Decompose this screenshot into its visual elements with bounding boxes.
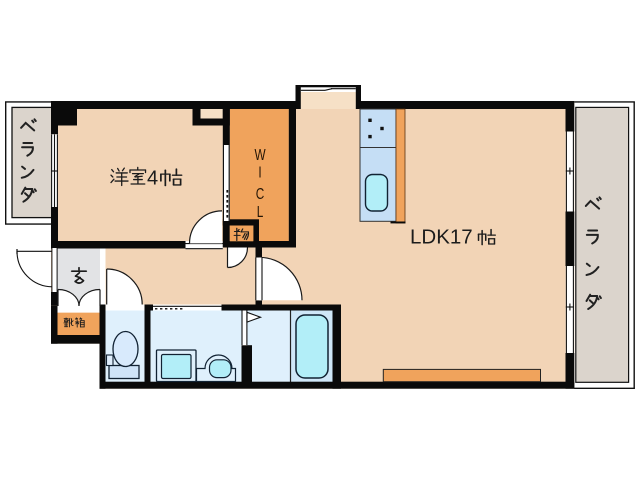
svg-text:C: C [256, 186, 265, 203]
svg-text:4: 4 [147, 168, 158, 190]
svg-text:I: I [258, 164, 261, 181]
svg-text:L: L [257, 204, 264, 221]
svg-text:W: W [254, 147, 265, 164]
svg-text:LDK17: LDK17 [410, 226, 473, 249]
